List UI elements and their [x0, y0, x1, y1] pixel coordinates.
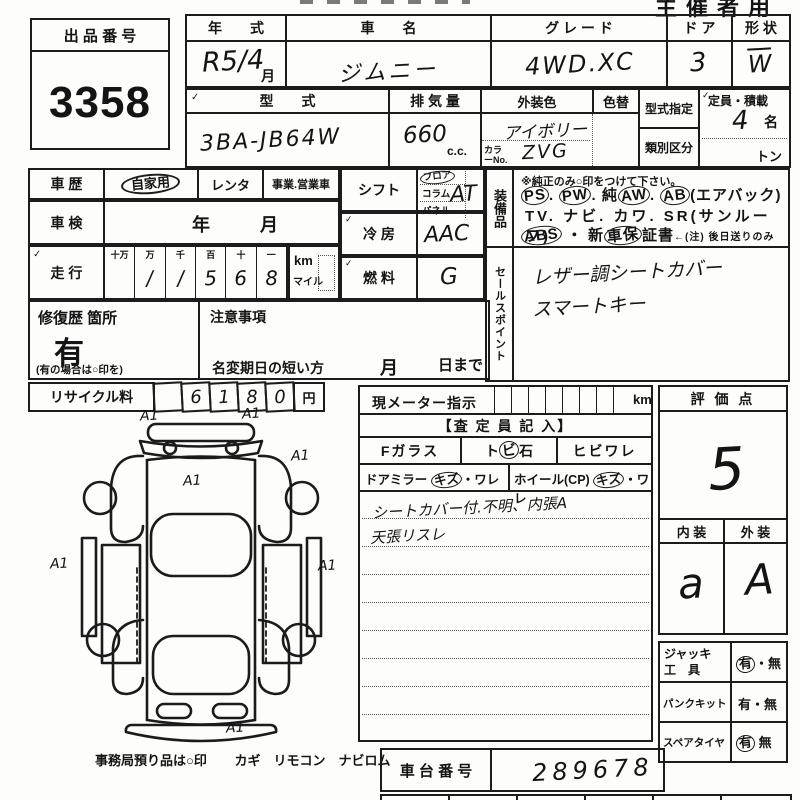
inspection-cell [103, 200, 340, 245]
stone-chip-cell: トビ石 [462, 438, 558, 463]
torn-header-marks [300, 0, 470, 4]
history-private-circled: 自家用 [121, 172, 181, 197]
digit-value-10: 6 [225, 260, 256, 295]
office-items-label: 事務局預り品は○印 [95, 753, 207, 768]
puncture-kit-label: パンクキット [663, 696, 727, 711]
rear-bumper [126, 725, 276, 741]
note-rule-3 [362, 574, 649, 575]
damage-annotation-3: A1 [183, 473, 202, 490]
capacity-divider [702, 138, 787, 139]
mileage-unit-box: km マイル [288, 245, 340, 300]
equipment-label: 装備品 [490, 189, 509, 228]
lot-number-box: 出 品 番 号 3358 [30, 18, 170, 150]
equip-warranty: 車保 [603, 224, 643, 247]
displacement-value: 660 [402, 121, 447, 149]
side-sill-right [307, 538, 321, 636]
damage-annotation-7: A1 [226, 720, 245, 737]
grade-value: 4WD.XC [524, 47, 635, 81]
jack-divider [730, 643, 732, 681]
digit-header-100k: 十万 [105, 247, 134, 261]
deadline-day: 日まで [438, 354, 483, 375]
fuel-header-text: 燃 料 [363, 268, 395, 288]
puncture-kit-value: 有・無 [738, 694, 777, 713]
year-value: R5/4 [201, 44, 265, 78]
lot-number-value: 3358 [32, 68, 168, 138]
sales-point-1: レザー調シートカバー [531, 253, 722, 290]
equip-pw: PW [558, 184, 592, 207]
displacement-unit: c.c. [447, 144, 467, 158]
caution-box: 注意事項 名変期日の短い方 月 日まで [198, 300, 490, 380]
puncture-kit-divider [730, 683, 732, 721]
jack-row: ジャッキ工 具 有・無 [660, 643, 786, 683]
meter-cell-3 [528, 387, 545, 413]
cutoff-bottom-strip [380, 794, 792, 800]
digit-value-100k [104, 260, 135, 295]
crack-cell: ヒビワレ [558, 438, 651, 463]
shift-value: AT [449, 181, 477, 207]
shape-value: W [747, 49, 772, 78]
digit-value-10k: / [134, 260, 165, 295]
door-mirror-cell: ドアミラー キズ・ワレ [365, 469, 508, 488]
office-items-line: 事務局預り品は○印 カギ リモコン ナビロム [95, 750, 391, 769]
meter-row: 現メーター指示 km [360, 387, 651, 415]
mileage-header: ✓ 走 行 [28, 245, 105, 300]
interior-grade: a [677, 558, 705, 608]
history-header: 車 歴 [28, 168, 105, 200]
recycle-fee-header: リサイクル料 [28, 382, 155, 412]
car-name-value: ジムニー [337, 51, 439, 88]
front-bumper [148, 424, 254, 441]
spare-tire-value: 有 無 [736, 732, 772, 752]
inspector-entry-header: 【査 定 員 記 入】 [360, 415, 651, 438]
caution-label: 注意事項 [210, 307, 266, 327]
history-rental-cell: レンタ [197, 168, 264, 200]
fuel-header: ✓ 燃 料 [340, 256, 418, 300]
equipment-label-cell: 装備品 [487, 170, 514, 246]
shape-header: 形 状 [731, 14, 791, 42]
sales-point-2: スマートキー [531, 289, 646, 322]
mileage-unit-checkbox [318, 255, 335, 291]
history-business-cell: 事業.営業車 [262, 168, 340, 200]
door-header: ド ア [666, 14, 733, 42]
tail-light-left [157, 704, 191, 718]
digit-header-10: 十 [226, 247, 255, 261]
office-items-values: カギ リモコン ナビロム [234, 753, 390, 768]
mileage-header-text: 走 行 [51, 263, 83, 283]
glass-row: Fガラス トビ石 ヒビワレ [360, 438, 651, 465]
repair-history-note: (有の場合は○印を) [36, 362, 123, 377]
equip-warranty-note: ←(注) 後日送りのみ [674, 232, 774, 243]
note-rule-2 [362, 546, 649, 547]
chassis-number-label: 車 台 番 号 [382, 750, 492, 790]
inspector-panel: 現メーター指示 km 【査 定 員 記 入】 Fガラス トビ石 ヒビワレ ドアミ… [358, 385, 653, 742]
repair-history-label: 修復歴 箇所 [38, 307, 117, 328]
inspection-header: 車 検 [28, 200, 105, 245]
strip-divider-2 [516, 796, 518, 800]
meter-cell-8 [613, 387, 630, 413]
digit-header-100: 百 [196, 247, 225, 261]
year-month-suffix: 月 [261, 66, 275, 86]
displacement-header: 排 気 量 [388, 88, 482, 114]
damage-annotation-4: A1 [291, 448, 310, 465]
recycle-digit-2: 1 [208, 381, 240, 413]
recycle-digit-1: 6 [180, 381, 212, 413]
model-code-tick: ✓ [191, 92, 200, 103]
note-rule-4 [362, 602, 649, 603]
jack-present-circled: 有 [735, 655, 756, 674]
capacity-ton: トン [756, 146, 782, 165]
recycle-yen-cell: 円 [293, 382, 325, 412]
repair-history-box: 修復歴 箇所 有 (有の場合は○印を) [28, 300, 200, 380]
auction-sheet: 主催者用 出 品 番 号 3358 年 式 車 名 グ レ ー ド ド ア 形 … [0, 0, 800, 800]
door-panel-right [263, 545, 301, 663]
rating-header: 評 価 点 [660, 387, 786, 412]
note-rule-5 [362, 630, 649, 631]
inspection-month: 月 [260, 211, 278, 237]
jack-label: ジャッキ工 具 [664, 647, 728, 678]
sales-points-label-cell: セールスポイント [487, 248, 514, 380]
strip-divider-1 [448, 796, 450, 800]
windshield [151, 514, 251, 576]
fuel-value: G [439, 264, 458, 291]
digit-value-100: 5 [195, 260, 226, 295]
ac-header: ✓ 冷 房 [340, 212, 418, 256]
stone-chip-circled: ビ [498, 440, 520, 460]
strip-divider-5 [720, 796, 722, 800]
model-code-header-text: 型 式 [260, 91, 316, 111]
deadline-month: 月 [380, 354, 398, 380]
model-code-header: ✓ 型 式 [185, 88, 390, 114]
digit-value-1k: / [165, 260, 196, 295]
note-rule-8 [362, 714, 649, 715]
mileage-digits-box: 十万 万 / 千 / 百 5 十 6 一 8 [103, 245, 288, 300]
year-header: 年 式 [185, 14, 287, 42]
equip-abs: ABS [520, 224, 562, 247]
ac-value: AAC [423, 221, 470, 248]
sales-points-box: セールスポイント レザー調シートカバー スマートキー [485, 246, 790, 382]
front-glass-cell: Fガラス [360, 438, 462, 463]
digit-value-1: 8 [256, 260, 287, 295]
equip-aw: AW [617, 184, 651, 207]
equip-ab: AB [659, 185, 691, 207]
strip-divider-3 [584, 796, 586, 800]
interior-header: 内 装 [660, 518, 723, 544]
spare-tire-label: スペアタイヤ [663, 735, 725, 750]
mileage-tick: ✓ [33, 249, 42, 260]
digit-header-1: 一 [257, 247, 286, 261]
ac-tick: ✓ [345, 215, 353, 225]
mirror-scratch-circled: キズ [430, 470, 463, 490]
capacity-unit: 名 [764, 112, 778, 132]
damage-annotation-1: A1 [140, 408, 159, 425]
shift-header: シフト [340, 168, 418, 212]
class-category-cell: 類別区分 [638, 127, 700, 168]
mileage-km-label: km [294, 253, 313, 268]
note-rule-1 [362, 518, 649, 519]
mirror-wheel-row: ドアミラー キズ・ワレ ホイール(CP) キズ・ワレ [360, 465, 651, 492]
damage-annotation-5: A1 [50, 556, 69, 573]
equip-ps: PS [520, 185, 550, 207]
type-designation-cell: 型式指定 [638, 88, 700, 129]
rating-mid-divider [723, 544, 725, 633]
meter-cell-6 [579, 387, 596, 413]
exterior-color-header: 外装色 [480, 88, 594, 114]
equipment-line3: ABS ・ 新車保証書←(注) 後日送りのみ [521, 226, 775, 246]
recycle-digit-4: 0 [264, 381, 296, 413]
strip-divider-4 [652, 796, 654, 800]
door-value: 3 [689, 48, 707, 79]
car-top-view-diagram [45, 418, 360, 748]
chassis-number-value: 289678 [531, 753, 654, 787]
color-change-header: 色替 [592, 88, 640, 114]
digit-header-10k: 万 [135, 247, 164, 261]
history-private-cell: 自家用 [103, 168, 199, 200]
grade-header: グ レ ー ド [490, 14, 668, 42]
meter-cell-5 [562, 387, 579, 413]
digit-header-1k: 千 [166, 247, 195, 261]
tail-light-right [213, 704, 247, 718]
door-panel-left [102, 545, 140, 663]
color-no-value: ZVG [521, 140, 569, 164]
exterior-header: 外 装 [723, 518, 786, 544]
note-rule-7 [362, 686, 649, 687]
rear-window [153, 636, 249, 694]
equip-airbag: (エアバック) [690, 187, 781, 204]
meter-label: 現メーター指示 [372, 393, 477, 413]
sales-points-label: セールスポイント [492, 266, 508, 362]
name-change-deadline: 名変期日の短い方 [212, 358, 324, 378]
car-name-header: 車 名 [285, 14, 492, 42]
color-change-divider [592, 114, 593, 166]
meter-cell-1 [494, 387, 511, 413]
inspection-year: 年 [192, 211, 210, 237]
rating-box: 評 価 点 5 内 装 外 装 a A [658, 385, 788, 635]
exterior-grade: A [744, 554, 775, 604]
color-no-label: カラーNo. [484, 146, 510, 166]
damage-annotation-2: A1 [242, 406, 261, 423]
meter-cell-4 [545, 387, 562, 413]
exterior-color-value: アイボリー [502, 115, 587, 144]
rating-value: 5 [706, 434, 746, 504]
meter-cell-2 [511, 387, 528, 413]
capacity-value: 4 [731, 106, 749, 137]
wheel-scratch-circled: キズ [592, 470, 625, 490]
fuel-tick: ✓ [345, 259, 353, 269]
jack-value: 有・無 [736, 653, 781, 673]
meter-cell-7 [596, 387, 613, 413]
damage-annotation-6: A1 [318, 558, 337, 575]
ac-header-text: 冷 房 [363, 224, 395, 244]
lot-number-label: 出 品 番 号 [32, 20, 168, 52]
capacity-box: ✓ 定員・積載 4 名 トン [698, 88, 791, 168]
equipment-box: 装備品 ※純正のみ○印をつけて下さい。 PS. PW. 純AW. AB(エアバッ… [485, 168, 790, 248]
puncture-kit-row: パンクキット 有・無 [660, 683, 786, 723]
tools-box: ジャッキ工 具 有・無 パンクキット 有・無 スペアタイヤ 有 無 [658, 641, 788, 763]
meter-km-unit: km [633, 392, 652, 407]
note-rule-6 [362, 658, 649, 659]
chassis-number-box: 車 台 番 号 289678 [380, 748, 665, 792]
side-sill-left [82, 538, 96, 636]
mirror-wheel-divider [508, 465, 510, 490]
spare-tire-divider [730, 723, 732, 761]
equipment-line1: PS. PW. 純AW. AB(エアバック) [521, 186, 781, 206]
spare-present-circled: 有 [735, 734, 756, 753]
spare-tire-row: スペアタイヤ 有 無 [660, 723, 786, 761]
inspector-note-2: 天張リスレ [370, 523, 446, 548]
